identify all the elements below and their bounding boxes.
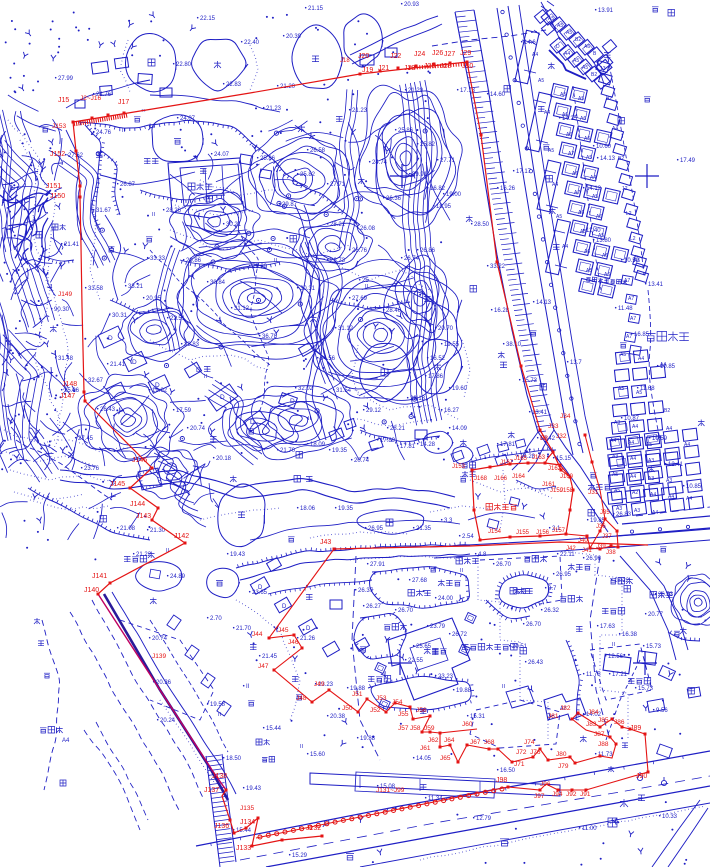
svg-text:26.86: 26.86 bbox=[420, 248, 436, 254]
svg-text:A4: A4 bbox=[612, 126, 618, 132]
svg-text:J67: J67 bbox=[470, 739, 481, 746]
svg-text:A4: A4 bbox=[652, 510, 658, 516]
svg-text:20.38: 20.38 bbox=[330, 714, 346, 720]
svg-text:20.77: 20.77 bbox=[648, 612, 664, 618]
svg-text:27.71: 27.71 bbox=[330, 182, 346, 188]
svg-text:34.56: 34.56 bbox=[320, 356, 336, 362]
svg-text:18.50: 18.50 bbox=[226, 756, 242, 762]
svg-text:A4: A4 bbox=[590, 175, 596, 181]
svg-text:J84: J84 bbox=[588, 709, 599, 716]
svg-text:15.31: 15.31 bbox=[470, 714, 486, 720]
svg-text:J29: J29 bbox=[460, 50, 471, 57]
svg-text:J68: J68 bbox=[484, 739, 495, 746]
svg-text:J33: J33 bbox=[548, 423, 559, 430]
svg-text:14.13: 14.13 bbox=[536, 300, 552, 306]
svg-text:J139: J139 bbox=[152, 653, 166, 660]
svg-text:21.35: 21.35 bbox=[416, 526, 432, 532]
svg-text:II: II bbox=[300, 744, 304, 750]
svg-text:14.05: 14.05 bbox=[416, 756, 432, 762]
svg-text:15.15: 15.15 bbox=[556, 456, 572, 462]
svg-text:19.35: 19.35 bbox=[332, 448, 348, 454]
svg-text:3.7: 3.7 bbox=[548, 586, 557, 592]
svg-text:26.70: 26.70 bbox=[398, 608, 414, 614]
svg-text:J166: J166 bbox=[494, 476, 508, 482]
svg-text:J153: J153 bbox=[452, 464, 466, 470]
svg-text:J2~J16: J2~J16 bbox=[80, 95, 102, 102]
svg-text:J149: J149 bbox=[58, 291, 72, 298]
svg-text:9.56: 9.56 bbox=[656, 708, 668, 714]
svg-text:12.41: 12.41 bbox=[668, 462, 684, 468]
svg-text:4.8: 4.8 bbox=[478, 552, 487, 558]
svg-text:25.65: 25.65 bbox=[416, 644, 432, 650]
svg-text:29.86: 29.86 bbox=[186, 258, 202, 264]
svg-text:17.21: 17.21 bbox=[612, 672, 628, 678]
svg-text:A5: A5 bbox=[548, 16, 554, 22]
svg-text:26.72: 26.72 bbox=[452, 632, 468, 638]
svg-text:22.55: 22.55 bbox=[408, 658, 424, 664]
svg-text:17.49: 17.49 bbox=[680, 158, 696, 164]
svg-text:II: II bbox=[308, 416, 312, 422]
svg-text:A3: A3 bbox=[648, 458, 654, 464]
svg-text:J46: J46 bbox=[288, 639, 299, 646]
svg-text:A3: A3 bbox=[612, 454, 618, 460]
svg-text:11.48: 11.48 bbox=[618, 306, 633, 312]
svg-text:21.23: 21.23 bbox=[352, 108, 368, 114]
svg-text:J150: J150 bbox=[50, 193, 65, 200]
svg-text:J40: J40 bbox=[578, 538, 588, 544]
svg-text:26.83: 26.83 bbox=[616, 512, 632, 518]
svg-text:J30: J30 bbox=[462, 63, 473, 70]
svg-text:21.26: 21.26 bbox=[300, 636, 316, 642]
svg-text:19.35: 19.35 bbox=[338, 506, 354, 512]
svg-text:J18: J18 bbox=[340, 58, 350, 64]
svg-text:J31: J31 bbox=[588, 489, 599, 496]
svg-text:21.45: 21.45 bbox=[262, 654, 278, 660]
svg-text:J41: J41 bbox=[582, 548, 592, 554]
svg-text:J86: J86 bbox=[614, 719, 625, 726]
svg-text:J158: J158 bbox=[560, 488, 574, 494]
svg-text:J152: J152 bbox=[50, 151, 65, 158]
svg-text:J59: J59 bbox=[424, 725, 435, 732]
svg-text:J76: J76 bbox=[530, 749, 541, 756]
svg-text:20.74: 20.74 bbox=[354, 458, 370, 464]
svg-text:J61: J61 bbox=[420, 745, 431, 752]
svg-text:19.55: 19.55 bbox=[444, 342, 460, 348]
svg-text:26.36: 26.36 bbox=[386, 196, 402, 202]
svg-text:B2: B2 bbox=[664, 408, 670, 414]
svg-text:A3: A3 bbox=[614, 420, 620, 426]
svg-text:27.91: 27.91 bbox=[370, 562, 386, 568]
svg-text:J44: J44 bbox=[252, 631, 263, 638]
svg-text:J165: J165 bbox=[514, 456, 528, 462]
svg-text:25.86: 25.86 bbox=[260, 156, 276, 162]
svg-text:A7: A7 bbox=[624, 278, 630, 284]
svg-text:21.15: 21.15 bbox=[308, 6, 324, 12]
svg-text:A5: A5 bbox=[646, 442, 652, 448]
svg-text:J82: J82 bbox=[560, 705, 571, 712]
svg-text:J94: J94 bbox=[552, 791, 563, 798]
svg-text:A6: A6 bbox=[572, 171, 578, 177]
svg-text:J164: J164 bbox=[512, 474, 526, 480]
svg-text:J156: J156 bbox=[536, 530, 550, 536]
svg-text:28.18: 28.18 bbox=[410, 396, 426, 402]
svg-text:J42: J42 bbox=[566, 546, 576, 552]
svg-text:J28: J28 bbox=[440, 63, 451, 70]
svg-text:19.88: 19.88 bbox=[456, 688, 472, 694]
svg-text:28.21: 28.21 bbox=[390, 426, 406, 432]
svg-text:J64: J64 bbox=[444, 737, 455, 744]
svg-text:J20: J20 bbox=[358, 53, 369, 60]
svg-text:20.39: 20.39 bbox=[286, 34, 302, 40]
svg-text:A3: A3 bbox=[634, 508, 640, 514]
svg-text:16.38: 16.38 bbox=[622, 632, 638, 638]
svg-text:A4: A4 bbox=[532, 52, 538, 58]
svg-text:J52: J52 bbox=[370, 707, 381, 714]
svg-text:A5: A5 bbox=[586, 155, 592, 161]
svg-text:A5: A5 bbox=[620, 352, 626, 358]
svg-text:26.95: 26.95 bbox=[368, 526, 384, 532]
svg-text:10.59: 10.59 bbox=[624, 258, 640, 264]
svg-text:J155: J155 bbox=[516, 530, 530, 536]
svg-text:30.84: 30.84 bbox=[210, 280, 226, 286]
svg-text:20.18: 20.18 bbox=[216, 456, 232, 462]
svg-text:A7: A7 bbox=[568, 151, 574, 157]
svg-text:J62: J62 bbox=[428, 737, 439, 744]
svg-text:J34: J34 bbox=[560, 413, 571, 420]
svg-text:J153: J153 bbox=[52, 123, 66, 130]
svg-text:21.22: 21.22 bbox=[136, 552, 152, 558]
svg-text:16.82: 16.82 bbox=[430, 186, 446, 192]
svg-text:J131~J99: J131~J99 bbox=[376, 787, 405, 794]
svg-text:24.07: 24.07 bbox=[214, 152, 230, 158]
svg-text:J97: J97 bbox=[534, 793, 545, 800]
svg-text:A5: A5 bbox=[592, 194, 598, 200]
svg-text:26.87: 26.87 bbox=[120, 182, 136, 188]
svg-text:II: II bbox=[502, 684, 506, 690]
svg-text:A4: A4 bbox=[562, 244, 568, 250]
svg-text:18.95: 18.95 bbox=[436, 204, 452, 210]
svg-text:II: II bbox=[122, 128, 126, 134]
svg-text:29.87: 29.87 bbox=[282, 202, 298, 208]
svg-text:A4: A4 bbox=[610, 438, 616, 444]
svg-text:A4: A4 bbox=[552, 182, 558, 188]
svg-text:10.33: 10.33 bbox=[662, 814, 678, 820]
svg-text:A4: A4 bbox=[686, 496, 692, 502]
svg-text:L2: L2 bbox=[626, 211, 632, 217]
svg-text:J154: J154 bbox=[488, 529, 502, 535]
svg-text:13.80: 13.80 bbox=[596, 238, 612, 244]
svg-text:J51: J51 bbox=[352, 691, 363, 698]
svg-text:19.00: 19.00 bbox=[446, 192, 462, 198]
svg-text:A4: A4 bbox=[638, 356, 644, 362]
svg-text:25.82: 25.82 bbox=[420, 142, 436, 148]
svg-text:18.06: 18.06 bbox=[300, 506, 316, 512]
svg-text:12: 12 bbox=[622, 186, 628, 192]
svg-text:II: II bbox=[204, 374, 208, 380]
svg-text:23.23: 23.23 bbox=[438, 674, 454, 680]
svg-text:A2: A2 bbox=[632, 490, 638, 496]
svg-text:J54: J54 bbox=[392, 699, 403, 706]
svg-text:J55: J55 bbox=[398, 711, 409, 718]
svg-text:24.76: 24.76 bbox=[96, 130, 112, 136]
svg-text:J38: J38 bbox=[606, 550, 616, 556]
svg-text:32.02: 32.02 bbox=[298, 386, 314, 392]
svg-text:26.70: 26.70 bbox=[496, 562, 512, 568]
svg-text:B3: B3 bbox=[540, 435, 548, 442]
svg-text:21.70: 21.70 bbox=[280, 448, 296, 454]
svg-text:J39: J39 bbox=[596, 544, 606, 550]
svg-text:17.81: 17.81 bbox=[400, 444, 416, 450]
svg-text:L2: L2 bbox=[630, 236, 636, 242]
svg-text:11.75: 11.75 bbox=[586, 672, 601, 678]
svg-text:26.32: 26.32 bbox=[544, 608, 560, 614]
svg-text:J137: J137 bbox=[204, 787, 219, 794]
svg-text:J23: J23 bbox=[404, 65, 415, 72]
svg-text:20.93: 20.93 bbox=[404, 2, 420, 8]
svg-text:10.85: 10.85 bbox=[660, 364, 676, 370]
svg-text:10.59: 10.59 bbox=[652, 436, 668, 442]
svg-text:25.82: 25.82 bbox=[300, 172, 316, 178]
svg-text:A5: A5 bbox=[573, 58, 579, 64]
svg-text:22.80: 22.80 bbox=[176, 62, 192, 68]
svg-text:17.86: 17.86 bbox=[428, 374, 444, 380]
svg-text:A5: A5 bbox=[578, 96, 584, 102]
svg-text:J71: J71 bbox=[514, 761, 525, 768]
svg-text:J140: J140 bbox=[84, 587, 99, 594]
svg-text:II: II bbox=[218, 712, 222, 718]
svg-text:16.50: 16.50 bbox=[500, 768, 516, 774]
svg-text:15.60: 15.60 bbox=[310, 752, 326, 758]
svg-text:J135: J135 bbox=[240, 805, 254, 812]
svg-text:A4: A4 bbox=[630, 456, 636, 462]
svg-text:J87: J87 bbox=[594, 731, 605, 738]
svg-text:16.52: 16.52 bbox=[430, 356, 446, 362]
svg-text:J162: J162 bbox=[548, 466, 562, 472]
svg-text:J136: J136 bbox=[214, 823, 229, 830]
svg-text:A5: A5 bbox=[560, 92, 566, 98]
svg-text:B2: B2 bbox=[606, 96, 612, 102]
svg-text:20.70: 20.70 bbox=[438, 326, 454, 332]
svg-text:J57: J57 bbox=[398, 725, 409, 732]
svg-text:20.74: 20.74 bbox=[152, 636, 168, 642]
svg-text:16.26: 16.26 bbox=[500, 186, 516, 192]
svg-text:A6: A6 bbox=[584, 44, 590, 50]
svg-text:20.51: 20.51 bbox=[512, 644, 528, 650]
svg-text:J88: J88 bbox=[598, 741, 609, 748]
svg-text:19.58: 19.58 bbox=[210, 702, 226, 708]
svg-text:J60: J60 bbox=[462, 721, 473, 728]
svg-text:16.27: 16.27 bbox=[444, 408, 460, 414]
svg-text:31.67: 31.67 bbox=[96, 208, 112, 214]
svg-text:26.74: 26.74 bbox=[404, 256, 420, 262]
svg-text:27.45: 27.45 bbox=[78, 436, 94, 442]
svg-text:26.27: 26.27 bbox=[366, 604, 382, 610]
svg-text:A7: A7 bbox=[626, 334, 632, 340]
svg-text:22.40: 22.40 bbox=[244, 40, 260, 46]
svg-text:23.76: 23.76 bbox=[84, 466, 100, 472]
svg-text:24.89: 24.89 bbox=[170, 574, 186, 580]
svg-text:A4: A4 bbox=[668, 494, 674, 500]
svg-text:10.60: 10.60 bbox=[596, 144, 612, 150]
svg-text:27.68: 27.68 bbox=[412, 578, 428, 584]
svg-text:J74: J74 bbox=[524, 739, 535, 746]
svg-text:A4: A4 bbox=[564, 51, 570, 57]
svg-text:A6: A6 bbox=[566, 132, 572, 138]
svg-text:20.95: 20.95 bbox=[146, 296, 162, 302]
svg-text:33.58: 33.58 bbox=[88, 286, 104, 292]
svg-text:14.09: 14.09 bbox=[452, 426, 468, 432]
svg-text:J138: J138 bbox=[212, 773, 227, 780]
svg-text:26.96: 26.96 bbox=[586, 556, 602, 562]
svg-text:J141: J141 bbox=[92, 573, 107, 580]
svg-text:A5: A5 bbox=[586, 268, 592, 274]
svg-text:J47: J47 bbox=[258, 663, 269, 670]
svg-text:A7: A7 bbox=[630, 316, 636, 322]
svg-text:13.91: 13.91 bbox=[598, 8, 614, 14]
svg-text:13: 13 bbox=[600, 66, 606, 72]
svg-text:J143: J143 bbox=[136, 513, 151, 520]
svg-text:A6: A6 bbox=[602, 253, 608, 259]
svg-text:13.41: 13.41 bbox=[648, 282, 664, 288]
svg-text:J80: J80 bbox=[556, 751, 567, 758]
svg-text:A4: A4 bbox=[650, 492, 656, 498]
svg-text:A6: A6 bbox=[596, 214, 602, 220]
svg-text:A6: A6 bbox=[604, 272, 610, 278]
svg-text:J142: J142 bbox=[174, 533, 189, 540]
svg-text:J83: J83 bbox=[586, 721, 597, 728]
svg-text:24.00: 24.00 bbox=[438, 596, 454, 602]
svg-text:J163: J163 bbox=[532, 455, 546, 461]
svg-text:B2: B2 bbox=[575, 37, 581, 43]
svg-text:A4: A4 bbox=[628, 440, 634, 446]
svg-text:28.26: 28.26 bbox=[166, 208, 182, 214]
svg-text:21.70: 21.70 bbox=[236, 626, 252, 632]
svg-text:23.65: 23.65 bbox=[252, 590, 268, 596]
svg-text:J81: J81 bbox=[548, 713, 559, 720]
svg-text:36.78: 36.78 bbox=[262, 334, 278, 340]
svg-text:23.79: 23.79 bbox=[430, 624, 446, 630]
svg-text:J92: J92 bbox=[566, 791, 577, 798]
svg-text:J89: J89 bbox=[630, 725, 641, 732]
svg-text:30.31: 30.31 bbox=[112, 313, 128, 319]
svg-text:J134: J134 bbox=[240, 819, 255, 826]
svg-text:J132: J132 bbox=[306, 825, 321, 832]
svg-text:J36: J36 bbox=[596, 524, 606, 530]
svg-text:26.53: 26.53 bbox=[658, 592, 674, 598]
svg-text:24.07: 24.07 bbox=[180, 116, 196, 122]
svg-text:II: II bbox=[246, 684, 250, 690]
svg-text:33.33: 33.33 bbox=[150, 256, 166, 262]
svg-text:B2: B2 bbox=[591, 72, 597, 78]
svg-text:A5: A5 bbox=[566, 30, 572, 36]
svg-text:J144: J144 bbox=[130, 501, 145, 508]
svg-text:26.43: 26.43 bbox=[528, 660, 544, 666]
svg-text:A5: A5 bbox=[618, 386, 624, 392]
svg-text:II: II bbox=[274, 258, 278, 264]
svg-text:A5: A5 bbox=[548, 148, 554, 154]
svg-text:17.89: 17.89 bbox=[380, 438, 396, 444]
svg-text:31.12: 31.12 bbox=[338, 326, 354, 332]
svg-text:J17: J17 bbox=[118, 99, 129, 106]
svg-text:J98: J98 bbox=[496, 777, 507, 784]
svg-text:J32: J32 bbox=[556, 433, 567, 440]
svg-text:11.40: 11.40 bbox=[586, 228, 601, 234]
svg-text:30.21: 30.21 bbox=[226, 222, 242, 228]
svg-text:20.24: 20.24 bbox=[160, 718, 176, 724]
svg-text:A5: A5 bbox=[582, 65, 588, 71]
svg-text:24.74: 24.74 bbox=[372, 160, 388, 166]
svg-text:J96: J96 bbox=[540, 781, 551, 788]
svg-text:A3: A3 bbox=[666, 478, 672, 484]
svg-text:D: D bbox=[290, 398, 295, 405]
svg-text:19.43: 19.43 bbox=[246, 786, 262, 792]
svg-text:J21: J21 bbox=[378, 65, 389, 72]
svg-text:J65: J65 bbox=[440, 755, 451, 762]
svg-text:26.37: 26.37 bbox=[358, 588, 374, 594]
svg-text:J56: J56 bbox=[416, 707, 427, 714]
svg-text:21.20: 21.20 bbox=[408, 88, 424, 94]
svg-text:10.87: 10.87 bbox=[624, 416, 640, 422]
svg-text:A7: A7 bbox=[574, 190, 580, 196]
svg-text:A6: A6 bbox=[584, 136, 590, 142]
svg-text:A4: A4 bbox=[62, 738, 70, 744]
svg-text:28.50: 28.50 bbox=[474, 222, 490, 228]
svg-text:A6: A6 bbox=[578, 210, 584, 216]
svg-text:19.60: 19.60 bbox=[452, 386, 468, 392]
svg-text:A5: A5 bbox=[612, 472, 618, 478]
svg-text:17.63: 17.63 bbox=[600, 624, 616, 630]
svg-text:11.68: 11.68 bbox=[640, 386, 655, 392]
svg-text:10.85: 10.85 bbox=[686, 484, 702, 490]
svg-text:D: D bbox=[556, 44, 560, 50]
svg-text:A6: A6 bbox=[584, 249, 590, 255]
svg-text:11.00: 11.00 bbox=[582, 826, 597, 832]
svg-text:A4: A4 bbox=[632, 424, 638, 430]
svg-text:27.71: 27.71 bbox=[440, 158, 456, 164]
svg-text:D: D bbox=[282, 604, 287, 610]
svg-text:26.95: 26.95 bbox=[556, 572, 572, 578]
svg-text:J145: J145 bbox=[110, 481, 125, 488]
svg-text:J167: J167 bbox=[500, 460, 514, 466]
svg-text:J72: J72 bbox=[516, 749, 527, 756]
svg-text:90.30: 90.30 bbox=[54, 307, 70, 313]
svg-text:21.08: 21.08 bbox=[120, 526, 136, 532]
svg-text:D: D bbox=[108, 335, 113, 342]
svg-text:17.17: 17.17 bbox=[516, 169, 532, 175]
svg-text:26.76: 26.76 bbox=[352, 248, 368, 254]
svg-text:J48: J48 bbox=[296, 695, 307, 702]
svg-text:19.88: 19.88 bbox=[360, 736, 376, 742]
svg-text:21.41: 21.41 bbox=[64, 242, 80, 248]
svg-text:27.99: 27.99 bbox=[58, 76, 74, 82]
svg-text:A4: A4 bbox=[630, 474, 636, 480]
svg-text:14.12: 14.12 bbox=[586, 186, 602, 192]
svg-text:J43: J43 bbox=[320, 539, 331, 546]
svg-text:J24: J24 bbox=[414, 51, 425, 58]
svg-text:26.43: 26.43 bbox=[100, 407, 116, 413]
svg-text:18.22: 18.22 bbox=[614, 578, 630, 584]
svg-text:28.46: 28.46 bbox=[386, 308, 402, 314]
svg-text:15.73: 15.73 bbox=[638, 686, 654, 692]
svg-text:26.08: 26.08 bbox=[360, 226, 376, 232]
svg-text:38.10: 38.10 bbox=[506, 342, 522, 348]
svg-text:J151: J151 bbox=[46, 183, 61, 190]
svg-text:14.13: 14.13 bbox=[600, 156, 616, 162]
svg-text:28.21: 28.21 bbox=[330, 222, 346, 228]
svg-text:3.3: 3.3 bbox=[444, 518, 453, 524]
svg-text:D: D bbox=[196, 367, 201, 374]
svg-text:14.6: 14.6 bbox=[524, 40, 536, 46]
